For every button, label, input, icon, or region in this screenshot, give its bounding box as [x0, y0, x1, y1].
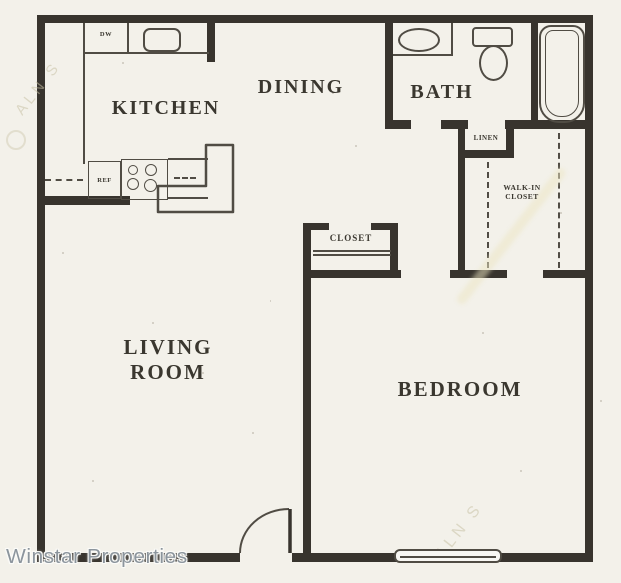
walk-in-closet-label: WALK-IN CLOSET: [489, 183, 555, 201]
wall-hall-closets-left: [458, 120, 465, 278]
kitchen-side-line: [83, 52, 85, 164]
living-label-line1: LIVING: [112, 335, 224, 360]
room-label-bedroom: BEDROOM: [390, 377, 530, 402]
range-stove: [121, 159, 168, 200]
bathtub-inner: [545, 30, 579, 117]
kitchen-counter-divider-left: [83, 23, 85, 54]
wall-dining-bath-cap: [385, 120, 411, 129]
window-mullion: [400, 556, 496, 558]
refrigerator-label: REF: [97, 177, 112, 184]
wall-exterior-top: [37, 15, 593, 23]
room-label-dining: DINING: [245, 75, 357, 99]
kitchen-lower-counter-bottom: [168, 197, 208, 199]
room-label-bath: BATH: [400, 80, 484, 104]
toilet-bowl: [479, 45, 508, 81]
burner-icon: [128, 165, 138, 175]
kitchen-opening-dash: [45, 179, 83, 181]
wall-linen-bottom: [458, 150, 512, 158]
closet-rod-line: [313, 250, 391, 252]
brand-watermark: Winstar Properties: [6, 545, 188, 568]
kitchen-sink: [143, 28, 181, 52]
entry-door-swing-arc: [240, 509, 289, 553]
bedroom-window: [394, 549, 502, 563]
vanity-sink: [398, 28, 440, 52]
wall-exterior-right: [585, 15, 593, 562]
walkin-rod-right: [558, 133, 560, 268]
walkin-label-line2: CLOSET: [489, 192, 555, 201]
closet-shelf-line: [313, 254, 391, 256]
closet-label: CLOSET: [318, 233, 384, 243]
burner-icon: [127, 178, 139, 190]
wall-tub-alcove-left: [531, 23, 538, 129]
kitchen-counter-edge: [83, 52, 209, 54]
linen-closet-label: LINEN: [464, 134, 508, 142]
kitchen-lower-counter-top: [168, 158, 208, 160]
vanity-front-edge: [393, 54, 453, 56]
toilet-tank: [472, 27, 513, 47]
wall-walkin-bottom-right: [543, 270, 593, 278]
scan-ring-artifact: [6, 130, 26, 150]
walkin-label-line1: WALK-IN: [489, 183, 555, 192]
walkin-rod-left: [487, 162, 489, 268]
burner-icon: [145, 164, 157, 176]
room-label-living-room: LIVING ROOM: [112, 335, 224, 385]
counter-dash: [174, 177, 196, 179]
floor-plan: ALN S ALN S: [0, 0, 621, 583]
wall-living-bedroom: [303, 223, 311, 562]
living-label-line2: ROOM: [112, 360, 224, 385]
room-label-kitchen: KITCHEN: [98, 96, 234, 120]
wall-closet-bottom: [303, 270, 401, 278]
wall-kitchen-dining-stub: [207, 23, 215, 62]
dishwasher-label: DW: [86, 31, 126, 38]
wall-dining-bath: [385, 23, 393, 122]
refrigerator: REF: [88, 161, 121, 199]
kitchen-counter-divider-mid: [127, 23, 129, 54]
burner-icon: [144, 179, 157, 192]
vanity-right-edge: [451, 23, 453, 56]
